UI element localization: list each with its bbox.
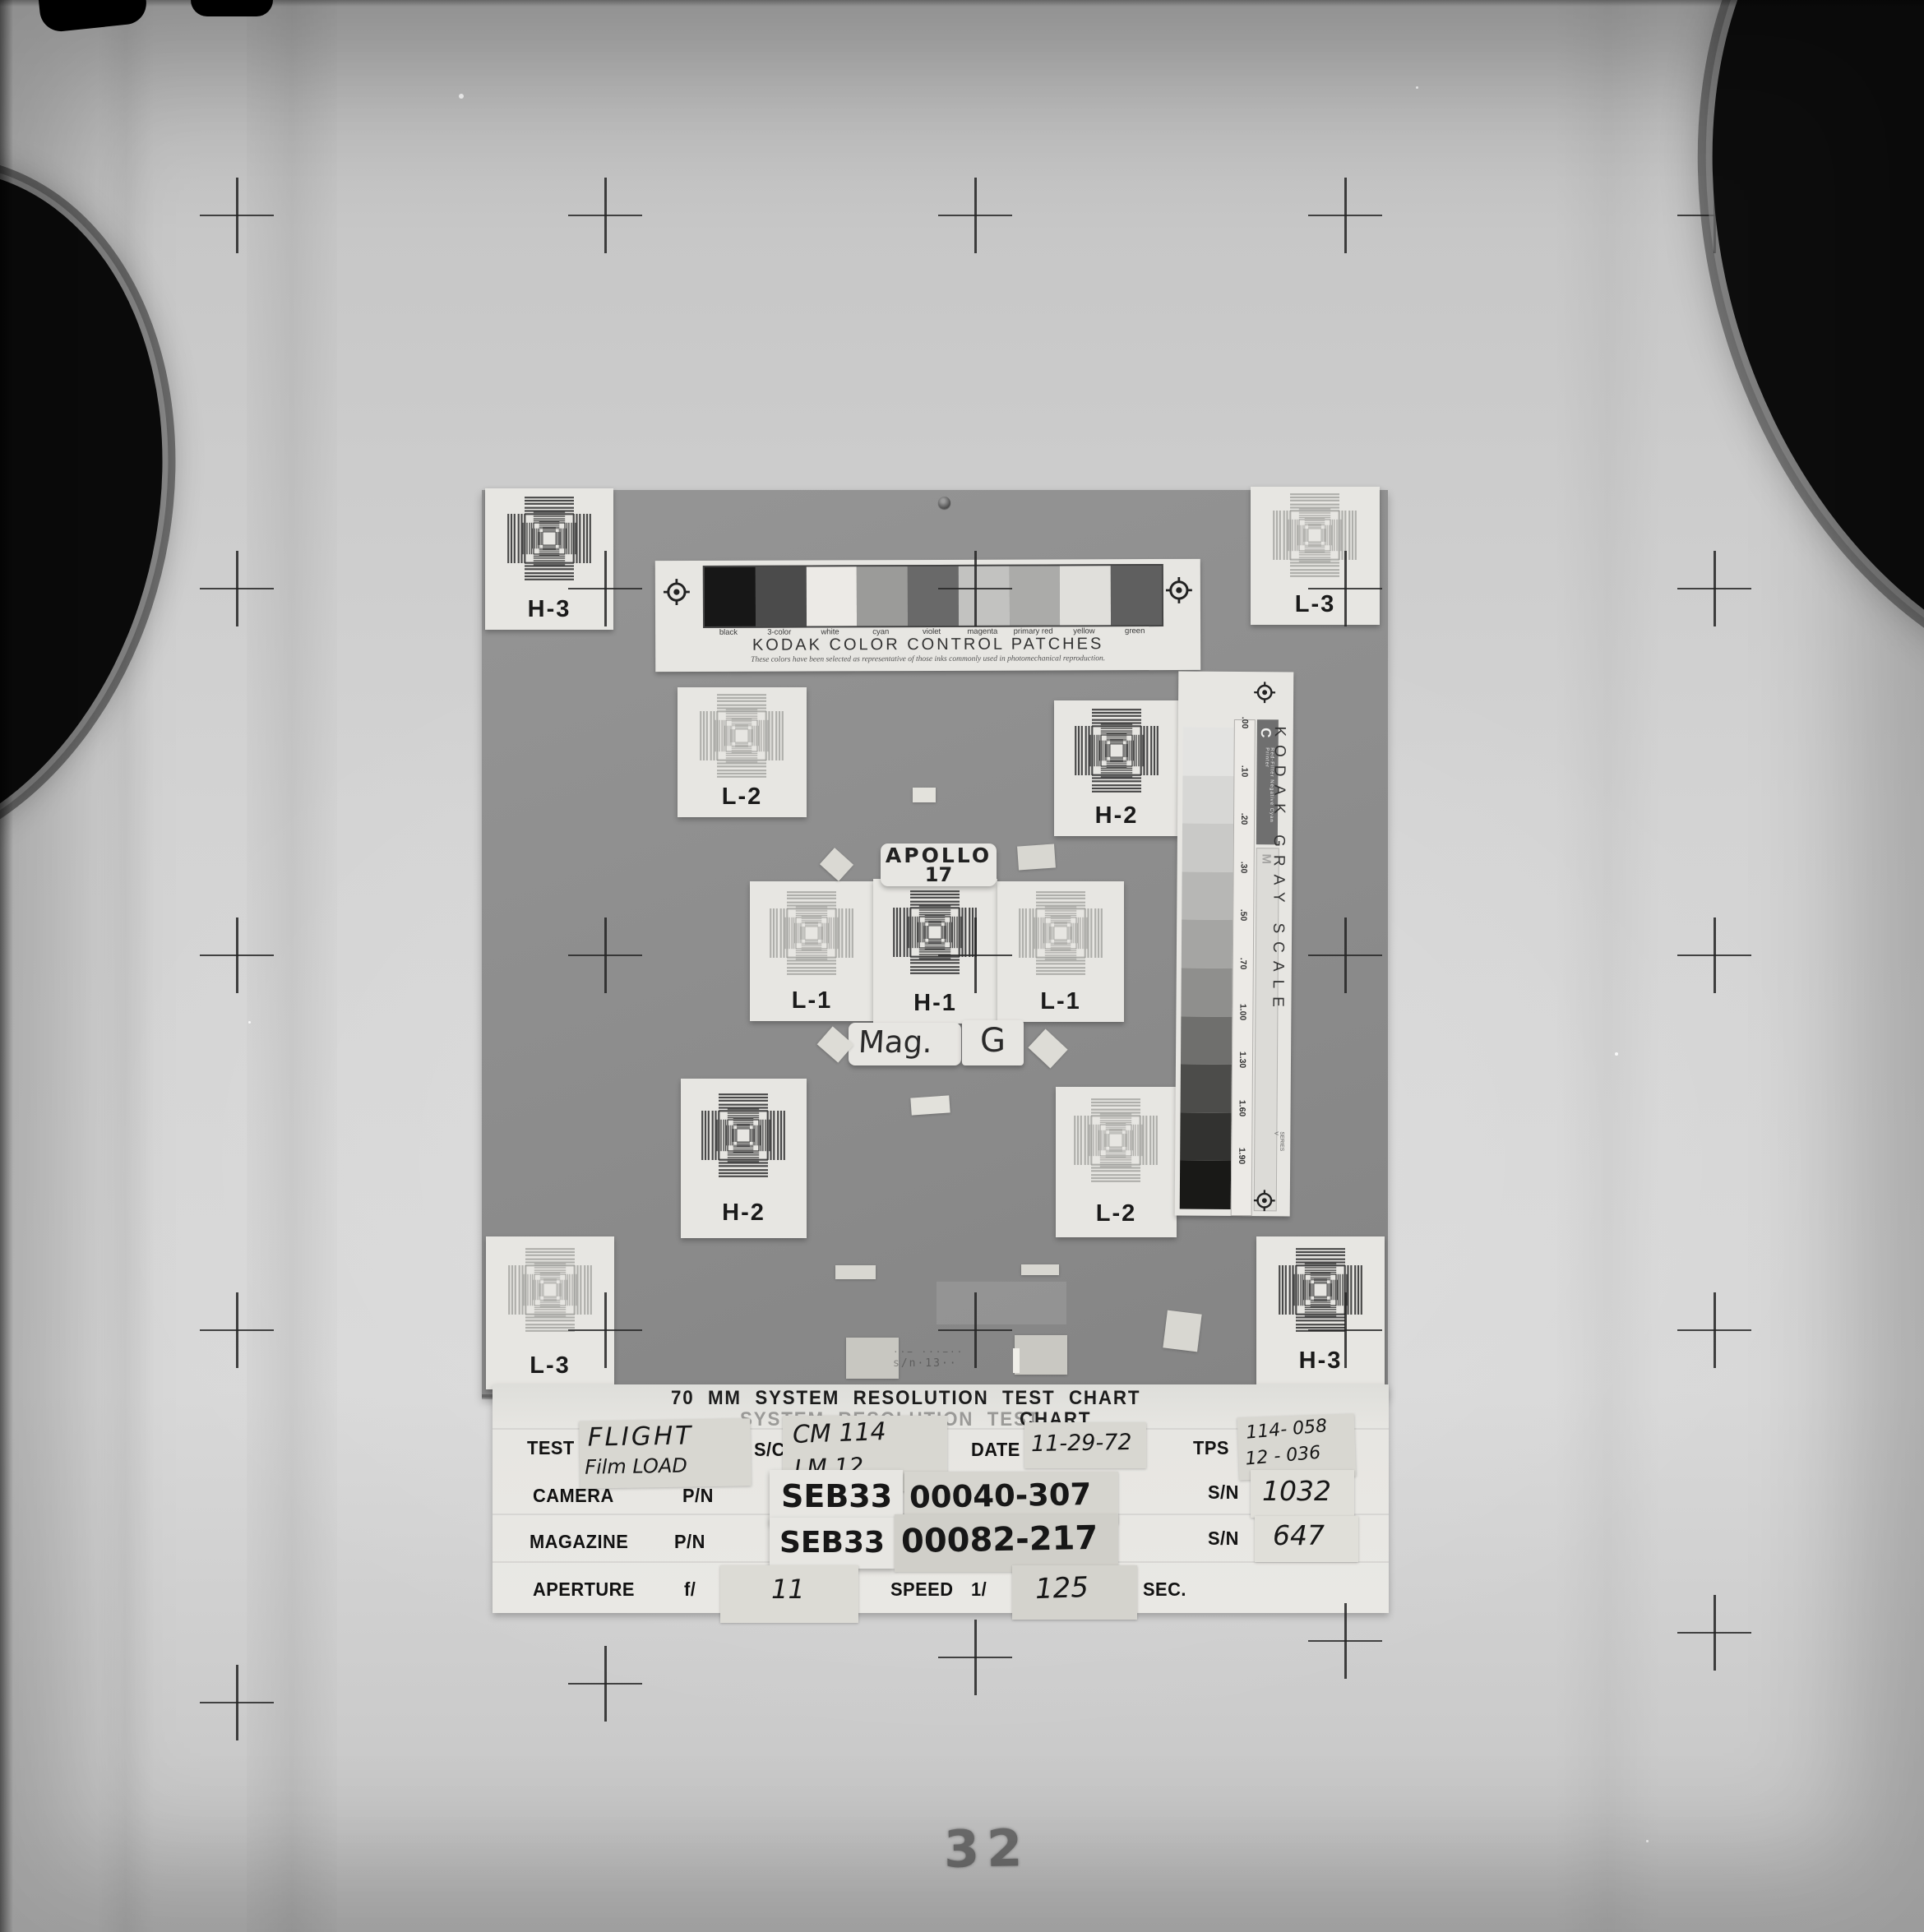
resolution-target-card: L-3	[1251, 487, 1380, 625]
foreground-lamp-silhouette	[0, 113, 232, 906]
color-patches-subtitle: These colors have been selected as repre…	[655, 654, 1200, 664]
tape-scrap	[1015, 1335, 1067, 1375]
speed-value-tape: 125	[1012, 1565, 1137, 1620]
fiducial-cross-icon	[568, 178, 642, 253]
camera-sn-label: S/N	[1208, 1481, 1239, 1504]
registration-mark-icon	[664, 579, 690, 605]
magazine-sn-value: 647	[1273, 1519, 1325, 1551]
tape-scrap	[913, 788, 936, 802]
color-patch	[1111, 566, 1162, 625]
wall-shading-band	[247, 0, 337, 1932]
magazine-pn-label: P/N	[674, 1531, 705, 1553]
gray-scale-density-label: 1.30	[1237, 1047, 1247, 1072]
magazine-pn-value: 00082-217	[901, 1519, 1098, 1560]
fiducial-cross-icon	[1308, 178, 1382, 253]
fiducial-cross-icon	[1677, 1292, 1751, 1368]
camera-pn-label: P/N	[682, 1485, 714, 1507]
magazine-pn-value-tape: 00082-217	[895, 1514, 1118, 1572]
gray-scale-density-label: .20	[1239, 807, 1249, 831]
gray-scale-density-label: .00	[1240, 710, 1250, 735]
resolution-target-label: H-1	[873, 990, 997, 1017]
registration-mark-icon	[1166, 577, 1192, 603]
kodak-color-control-patches-card: black3-colorwhitecyanvioletmagentaprimar…	[655, 559, 1200, 672]
fiducial-cross-icon	[200, 178, 274, 253]
frame-number: 32	[943, 1818, 1030, 1879]
apollo-label-line2: 17	[881, 866, 997, 884]
camera-pn-prefix: SEB33	[781, 1478, 892, 1514]
resolution-pattern	[1011, 886, 1111, 985]
aperture-f-label: f/	[684, 1578, 696, 1601]
sc-label: S/C	[754, 1439, 785, 1461]
gray-scale-density-label: .70	[1238, 951, 1248, 976]
resolution-target-label: H-2	[681, 1199, 807, 1227]
magazine-pn-prefix-card: SEB33	[770, 1518, 895, 1569]
resolution-target-label: H-2	[1054, 802, 1179, 830]
test-value-line1: FLIGHT	[587, 1421, 693, 1452]
mag-label-card: Mag.	[849, 1023, 961, 1065]
resolution-target-card: H-3	[485, 488, 613, 630]
color-patch	[1009, 566, 1060, 625]
color-patch	[959, 566, 1010, 626]
speed-label: SPEED	[890, 1578, 953, 1601]
color-patch	[756, 567, 807, 626]
fiducial-cross-icon	[200, 1292, 274, 1368]
color-patch	[908, 566, 959, 626]
gray-scale-density-label: .10	[1239, 759, 1249, 783]
mag-label-text: Mag.	[858, 1024, 933, 1060]
resolution-target-card: H-2	[1054, 700, 1179, 836]
resolution-pattern	[1066, 704, 1167, 802]
fiducial-cross-icon	[200, 917, 274, 993]
camera-sn-value-tape: 1032	[1251, 1470, 1354, 1518]
kodak-gray-scale-card: .00.10.20.30.50.701.001.301.601.90 C Red…	[1175, 672, 1294, 1217]
camera-sn-value: 1032	[1262, 1475, 1331, 1507]
fiducial-cross-icon	[1308, 1603, 1382, 1679]
resolution-pattern	[693, 1088, 793, 1187]
dust-speck	[1416, 86, 1418, 89]
resolution-pattern	[1270, 1243, 1371, 1342]
color-patches-title: KODAK COLOR CONTROL PATCHES	[655, 635, 1200, 655]
resolution-pattern	[500, 1243, 600, 1342]
fiducial-cross-icon	[200, 1665, 274, 1740]
fiducial-cross-icon	[938, 1620, 1012, 1695]
wall-shading-band	[1554, 0, 1661, 1932]
resolution-target-label: L-3	[486, 1352, 614, 1380]
speed-prefix: 1/	[971, 1578, 987, 1601]
color-patch	[806, 566, 857, 626]
resolution-pattern	[1265, 488, 1365, 587]
board-stencil-line2: s/n·13··	[893, 1357, 1016, 1370]
date-value-tape: 11-29-72	[1024, 1422, 1146, 1468]
mag-letter-card: G	[962, 1020, 1024, 1065]
aperture-f-value: 11	[771, 1574, 805, 1605]
resolution-target-card: L-2	[1056, 1087, 1177, 1237]
fiducial-cross-icon	[1677, 1595, 1751, 1671]
magazine-pn-prefix: SEB33	[779, 1526, 885, 1560]
fiducial-cross-icon	[1677, 917, 1751, 993]
resolution-target-label: L-2	[1056, 1200, 1177, 1227]
color-patch-row	[703, 564, 1163, 628]
resolution-pattern	[761, 886, 862, 985]
resolution-target-card: L-1	[997, 881, 1124, 1022]
resolution-target-card: H-1	[873, 879, 997, 1024]
color-patch	[1060, 566, 1111, 625]
fiducial-cross-icon	[1677, 551, 1751, 626]
dust-speck	[1646, 1840, 1649, 1842]
adhesive-residue	[937, 1280, 1066, 1324]
dust-speck	[1615, 1052, 1618, 1056]
camera-label: CAMERA	[533, 1485, 614, 1507]
mag-letter-text: G	[962, 1022, 1024, 1060]
sec-label: SEC.	[1143, 1578, 1186, 1601]
tape-scrap	[1017, 844, 1056, 870]
camera-pn-value: 00040-307	[909, 1477, 1092, 1515]
fiducial-cross-icon	[200, 551, 274, 626]
gray-scale-density-label: .50	[1238, 903, 1248, 927]
resolution-target-label: H-3	[1256, 1347, 1385, 1375]
sc-value-line1: CM 114	[792, 1417, 886, 1449]
aperture-label: APERTURE	[533, 1578, 635, 1601]
resolution-target-card: H-2	[681, 1079, 807, 1238]
magazine-label: MAGAZINE	[530, 1531, 628, 1553]
board-stencil-line1: ··− ···−··	[893, 1347, 1016, 1357]
resolution-target-card: L-1	[750, 881, 874, 1021]
magazine-sn-value-tape: 647	[1255, 1516, 1358, 1562]
registration-mark-icon	[1254, 682, 1275, 703]
tape-scrap	[846, 1338, 899, 1379]
panel-title-line1: 70 MM SYSTEM RESOLUTION TEST CHART	[671, 1387, 1140, 1410]
fiducial-cross-icon	[568, 1646, 642, 1722]
resolution-target-label: L-1	[997, 988, 1124, 1015]
resolution-pattern	[1066, 1093, 1166, 1192]
resolution-target-label: L-1	[750, 987, 874, 1015]
color-patch	[705, 567, 756, 626]
test-value-line2: Film LOAD	[585, 1454, 687, 1479]
gray-scale-density-label: 1.90	[1237, 1144, 1246, 1168]
resolution-target-label: H-3	[485, 596, 613, 623]
resolution-target-card: L-3	[486, 1236, 614, 1389]
registration-mark-icon	[1254, 1190, 1275, 1211]
gray-scale-title: KODAK GRAY SCALE	[1267, 726, 1288, 1186]
resolution-pattern	[885, 885, 985, 984]
board-stencil-text: ··− ···−·· s/n·13··	[893, 1347, 1016, 1370]
aperture-value-tape: 11	[720, 1565, 858, 1623]
film-edge	[0, 0, 1924, 7]
tps-label: TPS	[1193, 1437, 1229, 1459]
film-edge	[0, 0, 13, 1932]
gray-scale-density-label: 1.00	[1237, 1000, 1247, 1024]
apollo-label-card: APOLLO 17	[881, 844, 997, 886]
dust-speck	[248, 1021, 251, 1024]
resolution-pattern	[691, 689, 792, 788]
magazine-sn-label: S/N	[1208, 1528, 1239, 1550]
tape-scrap	[910, 1095, 950, 1115]
tape-scrap	[835, 1265, 876, 1279]
resolution-pattern	[499, 492, 599, 590]
speed-value: 125	[1034, 1571, 1089, 1606]
tps-value-line1: 114- 058	[1245, 1416, 1328, 1444]
tps-value-line2: 12 - 036	[1244, 1443, 1321, 1470]
gray-scale-series: SERIES V	[1273, 1131, 1284, 1154]
camera-pn-prefix-card: SEB33	[770, 1470, 903, 1524]
mounting-screw-icon	[938, 497, 950, 509]
date-value: 11-29-72	[1031, 1430, 1132, 1457]
resolution-target-label: L-3	[1251, 591, 1380, 618]
resolution-target-card: H-3	[1256, 1236, 1385, 1384]
gray-scale-density-label: 1.60	[1237, 1096, 1247, 1121]
gray-scale-density-label: .30	[1239, 855, 1249, 880]
tape-scrap	[1021, 1264, 1059, 1275]
test-value-tape: FLIGHT Film LOAD	[579, 1418, 751, 1489]
color-patch	[857, 566, 908, 626]
date-label: DATE	[971, 1439, 1020, 1461]
fiducial-cross-icon	[938, 178, 1012, 253]
test-label: TEST	[527, 1437, 575, 1459]
tape-scrap	[1163, 1310, 1201, 1352]
foreground-lamp-silhouette	[1604, 0, 1924, 768]
dust-speck	[459, 94, 464, 99]
resolution-target-label: L-2	[678, 783, 807, 811]
resolution-target-card: L-2	[678, 687, 807, 817]
test-chart-photograph: H-3 L-3 L-2 H-2 L-1 H-1 L-1 H-2 L-2 L-3 …	[0, 0, 1924, 1932]
